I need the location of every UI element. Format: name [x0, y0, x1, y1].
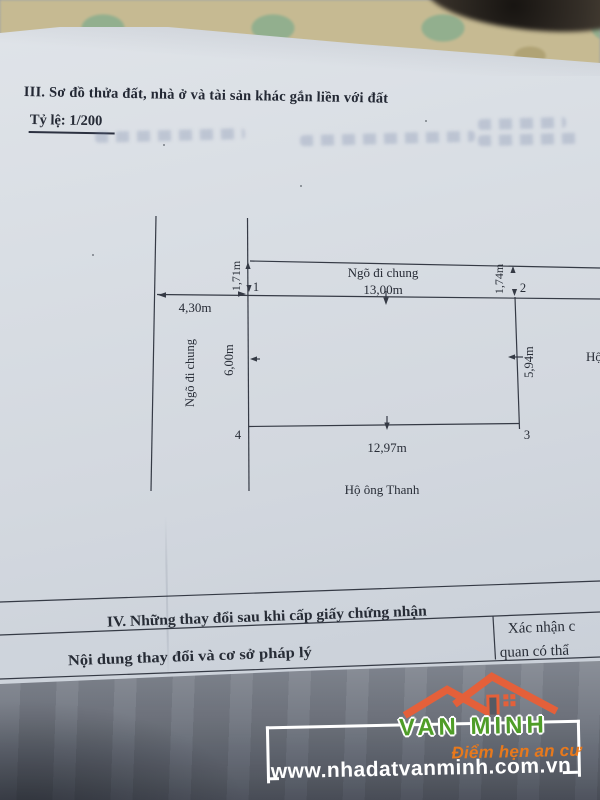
top-edge-dimension: 13,00m: [363, 282, 402, 297]
bottom-edge-dimension: 12,97m: [367, 440, 406, 455]
land-certificate-photo: III. Sơ đồ thửa đất, nhà ở và tài sản kh…: [0, 0, 600, 800]
vanminh-watermark: VAN MINH Điểm hẹn an cư www.nhadatvanmin…: [249, 656, 600, 800]
right-edge-dimension: 5,94m: [522, 346, 536, 378]
dimension-arrows: [158, 262, 523, 430]
corner-label-3: 3: [524, 428, 530, 442]
brand-name: VAN MINH: [399, 711, 548, 742]
column-confirm-header-line1: Xác nhận c: [508, 619, 576, 637]
left-edge-dimension: 6,00m: [222, 344, 236, 376]
left-offset-dimension: 1,71m: [229, 260, 243, 291]
right-offset-dimension: 1,74m: [492, 263, 506, 294]
right-neighbor-label: Hộ: [586, 349, 600, 364]
bottom-neighbor-label: Hộ ông Thanh: [345, 482, 420, 497]
section-iv-title: IV. Những thay đổi sau khi cấp giấy chứn…: [107, 603, 428, 630]
corner-label-1: 1: [253, 280, 259, 294]
corner-label-4: 4: [235, 428, 242, 442]
top-road-label: Ngõ đi chung: [348, 265, 419, 280]
alley-width-dimension: 4,30m: [179, 300, 212, 315]
corner-label-2: 2: [520, 281, 526, 295]
website-url: www.nhadatvanminh.com.vn: [271, 754, 572, 784]
left-road-label: Ngõ đi chung: [183, 338, 197, 407]
